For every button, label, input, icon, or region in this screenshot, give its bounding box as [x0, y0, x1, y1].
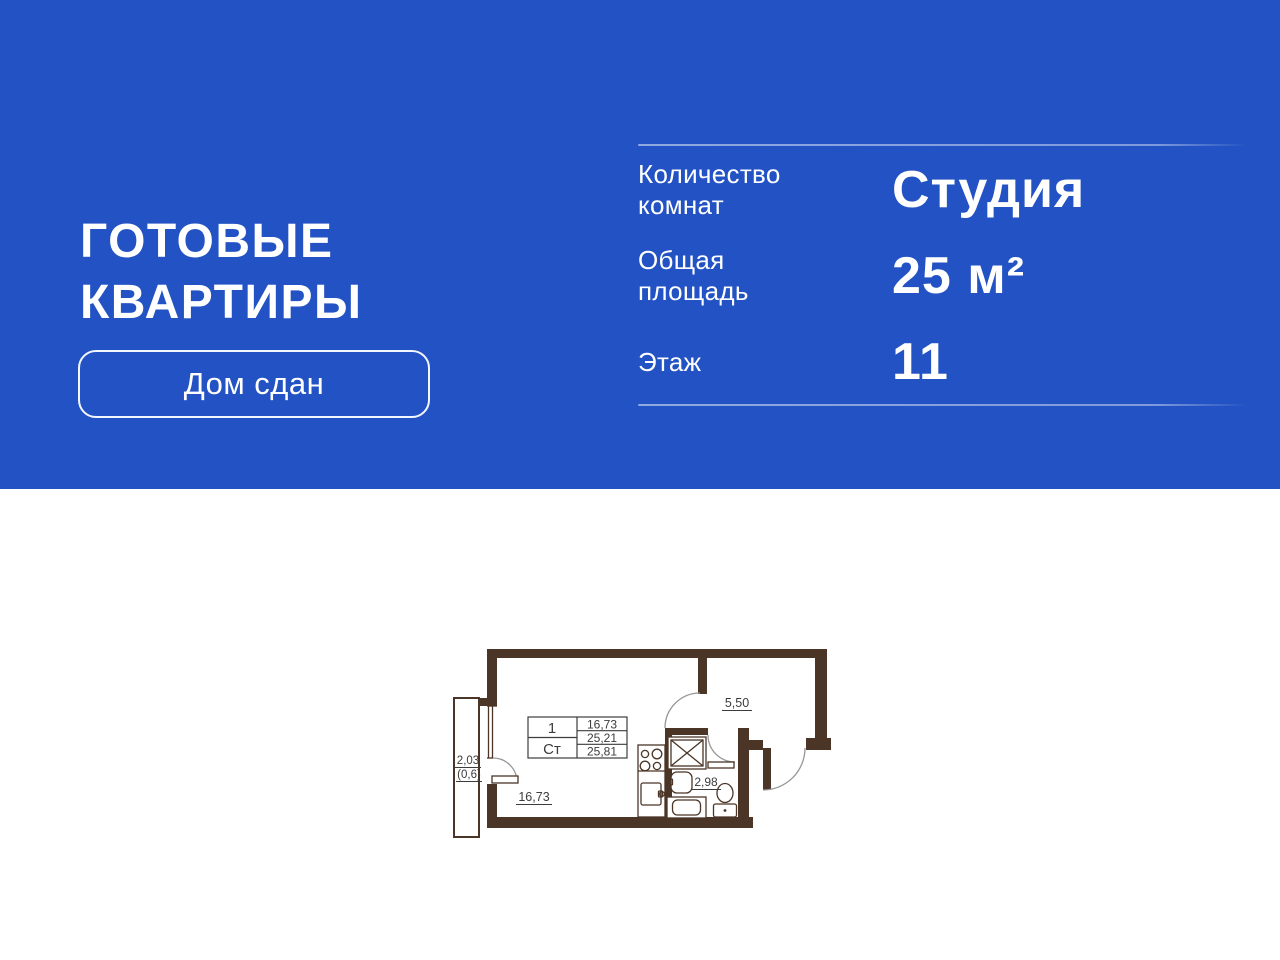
stamp-room-count: 1	[548, 720, 556, 737]
title-line-1: ГОТОВЫЕ	[80, 211, 362, 272]
title-line-2: КВАРТИРЫ	[80, 272, 362, 333]
spec-value-area: 25 м²	[892, 248, 1025, 304]
spec-value-floor: 11	[892, 334, 949, 390]
spec-row-floor: Этаж 11	[638, 318, 1248, 404]
apartment-stamp-table: 1 Ст 16,73 25,21 25,81	[528, 717, 627, 759]
spec-label-floor: Этаж	[638, 347, 892, 378]
house-delivered-badge[interactable]: Дом сдан	[78, 350, 430, 418]
spec-row-area: Общая площадь 25 м²	[638, 232, 1248, 318]
washing-machine-icon	[667, 797, 706, 818]
room-door-icon	[665, 693, 700, 728]
stamp-total-area: 25,81	[587, 745, 617, 759]
balcony-area-label: (0,6)	[457, 769, 481, 781]
spec-value-rooms: Студия	[892, 162, 1085, 218]
balcony-door-icon	[492, 758, 518, 783]
stamp-living-area: 16,73	[587, 718, 617, 732]
balcony-window-icon	[487, 706, 497, 758]
shower-icon	[668, 737, 706, 769]
spec-label-rooms: Количество комнат	[638, 159, 892, 221]
specs-divider-bottom	[638, 404, 1248, 406]
specs-table: Количество комнат Студия Общая площадь 2…	[638, 144, 1248, 406]
floor-plan-drawing: 1 Ст 16,73 25,21 25,81 5,50 16,73 2,98 2…	[445, 630, 840, 845]
spec-row-rooms: Количество комнат Студия	[638, 146, 1248, 232]
stamp-type: Ст	[543, 741, 561, 758]
floor-plan: 1 Ст 16,73 25,21 25,81 5,50 16,73 2,98 2…	[445, 630, 840, 845]
balcony-width-label: 2,03	[457, 755, 479, 767]
entry-door-icon	[763, 748, 805, 790]
bathroom-door-icon	[708, 735, 735, 768]
bath-area-label: 2,98	[694, 775, 718, 789]
room-area-label: 16,73	[518, 790, 549, 804]
badge-label: Дом сдан	[184, 366, 324, 402]
page-title: ГОТОВЫЕ КВАРТИРЫ	[80, 211, 362, 333]
stamp-area: 25,21	[587, 731, 617, 745]
spec-label-area: Общая площадь	[638, 245, 892, 307]
promo-banner: ГОТОВЫЕ КВАРТИРЫ Дом сдан Количество ком…	[0, 0, 1280, 489]
hall-area-label: 5,50	[725, 696, 749, 710]
